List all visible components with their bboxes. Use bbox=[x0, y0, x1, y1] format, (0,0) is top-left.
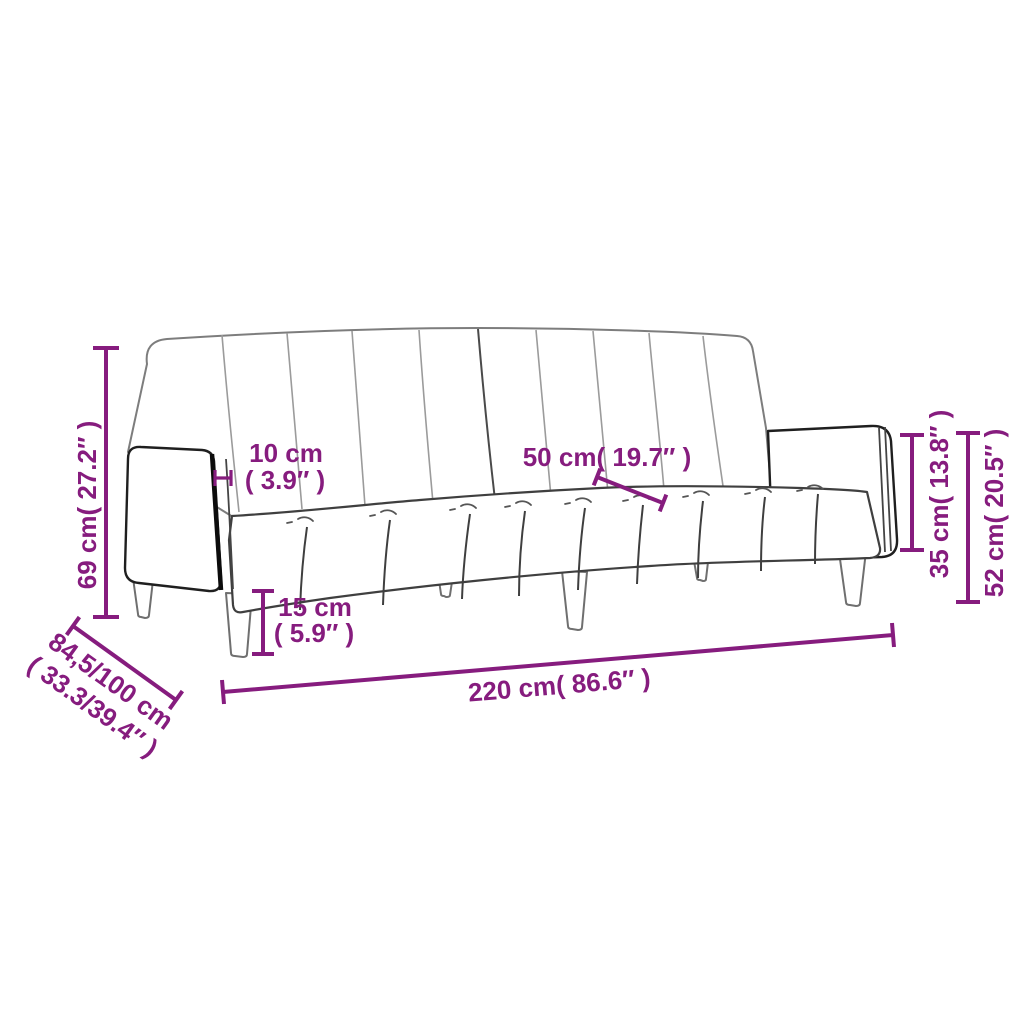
sofa-drawing bbox=[125, 328, 897, 657]
dimension-depth: 84,5/100 cm ( 33.3/39.4″ ) bbox=[22, 617, 182, 763]
dimension-armrest-height: 35 cm( 13.8″ ) bbox=[900, 410, 954, 579]
dimension-height-52: 52 cm( 20.5″ ) bbox=[956, 429, 1009, 602]
sofa-front-leg-center bbox=[562, 571, 587, 630]
sofa-dimension-diagram: 69 cm( 27.2″ ) 84,5/100 cm ( 33.3/39.4″ … bbox=[0, 0, 1024, 1024]
dimension-label: 50 cm( 19.7″ ) bbox=[523, 442, 692, 472]
dimension-label: 35 cm( 13.8″ ) bbox=[924, 410, 954, 579]
sofa-left-armrest bbox=[125, 447, 221, 591]
dimension-overall-height: 69 cm( 27.2″ ) bbox=[72, 348, 119, 617]
dimension-label: ( 3.9″ ) bbox=[245, 465, 325, 495]
dimension-label: ( 5.9″ ) bbox=[274, 618, 354, 648]
dimension-label: 69 cm( 27.2″ ) bbox=[72, 421, 102, 590]
dimension-line bbox=[956, 433, 980, 602]
dimension-line bbox=[900, 435, 924, 550]
dimension-label: 10 cm bbox=[249, 438, 323, 468]
dimension-label: 52 cm( 20.5″ ) bbox=[979, 429, 1009, 598]
